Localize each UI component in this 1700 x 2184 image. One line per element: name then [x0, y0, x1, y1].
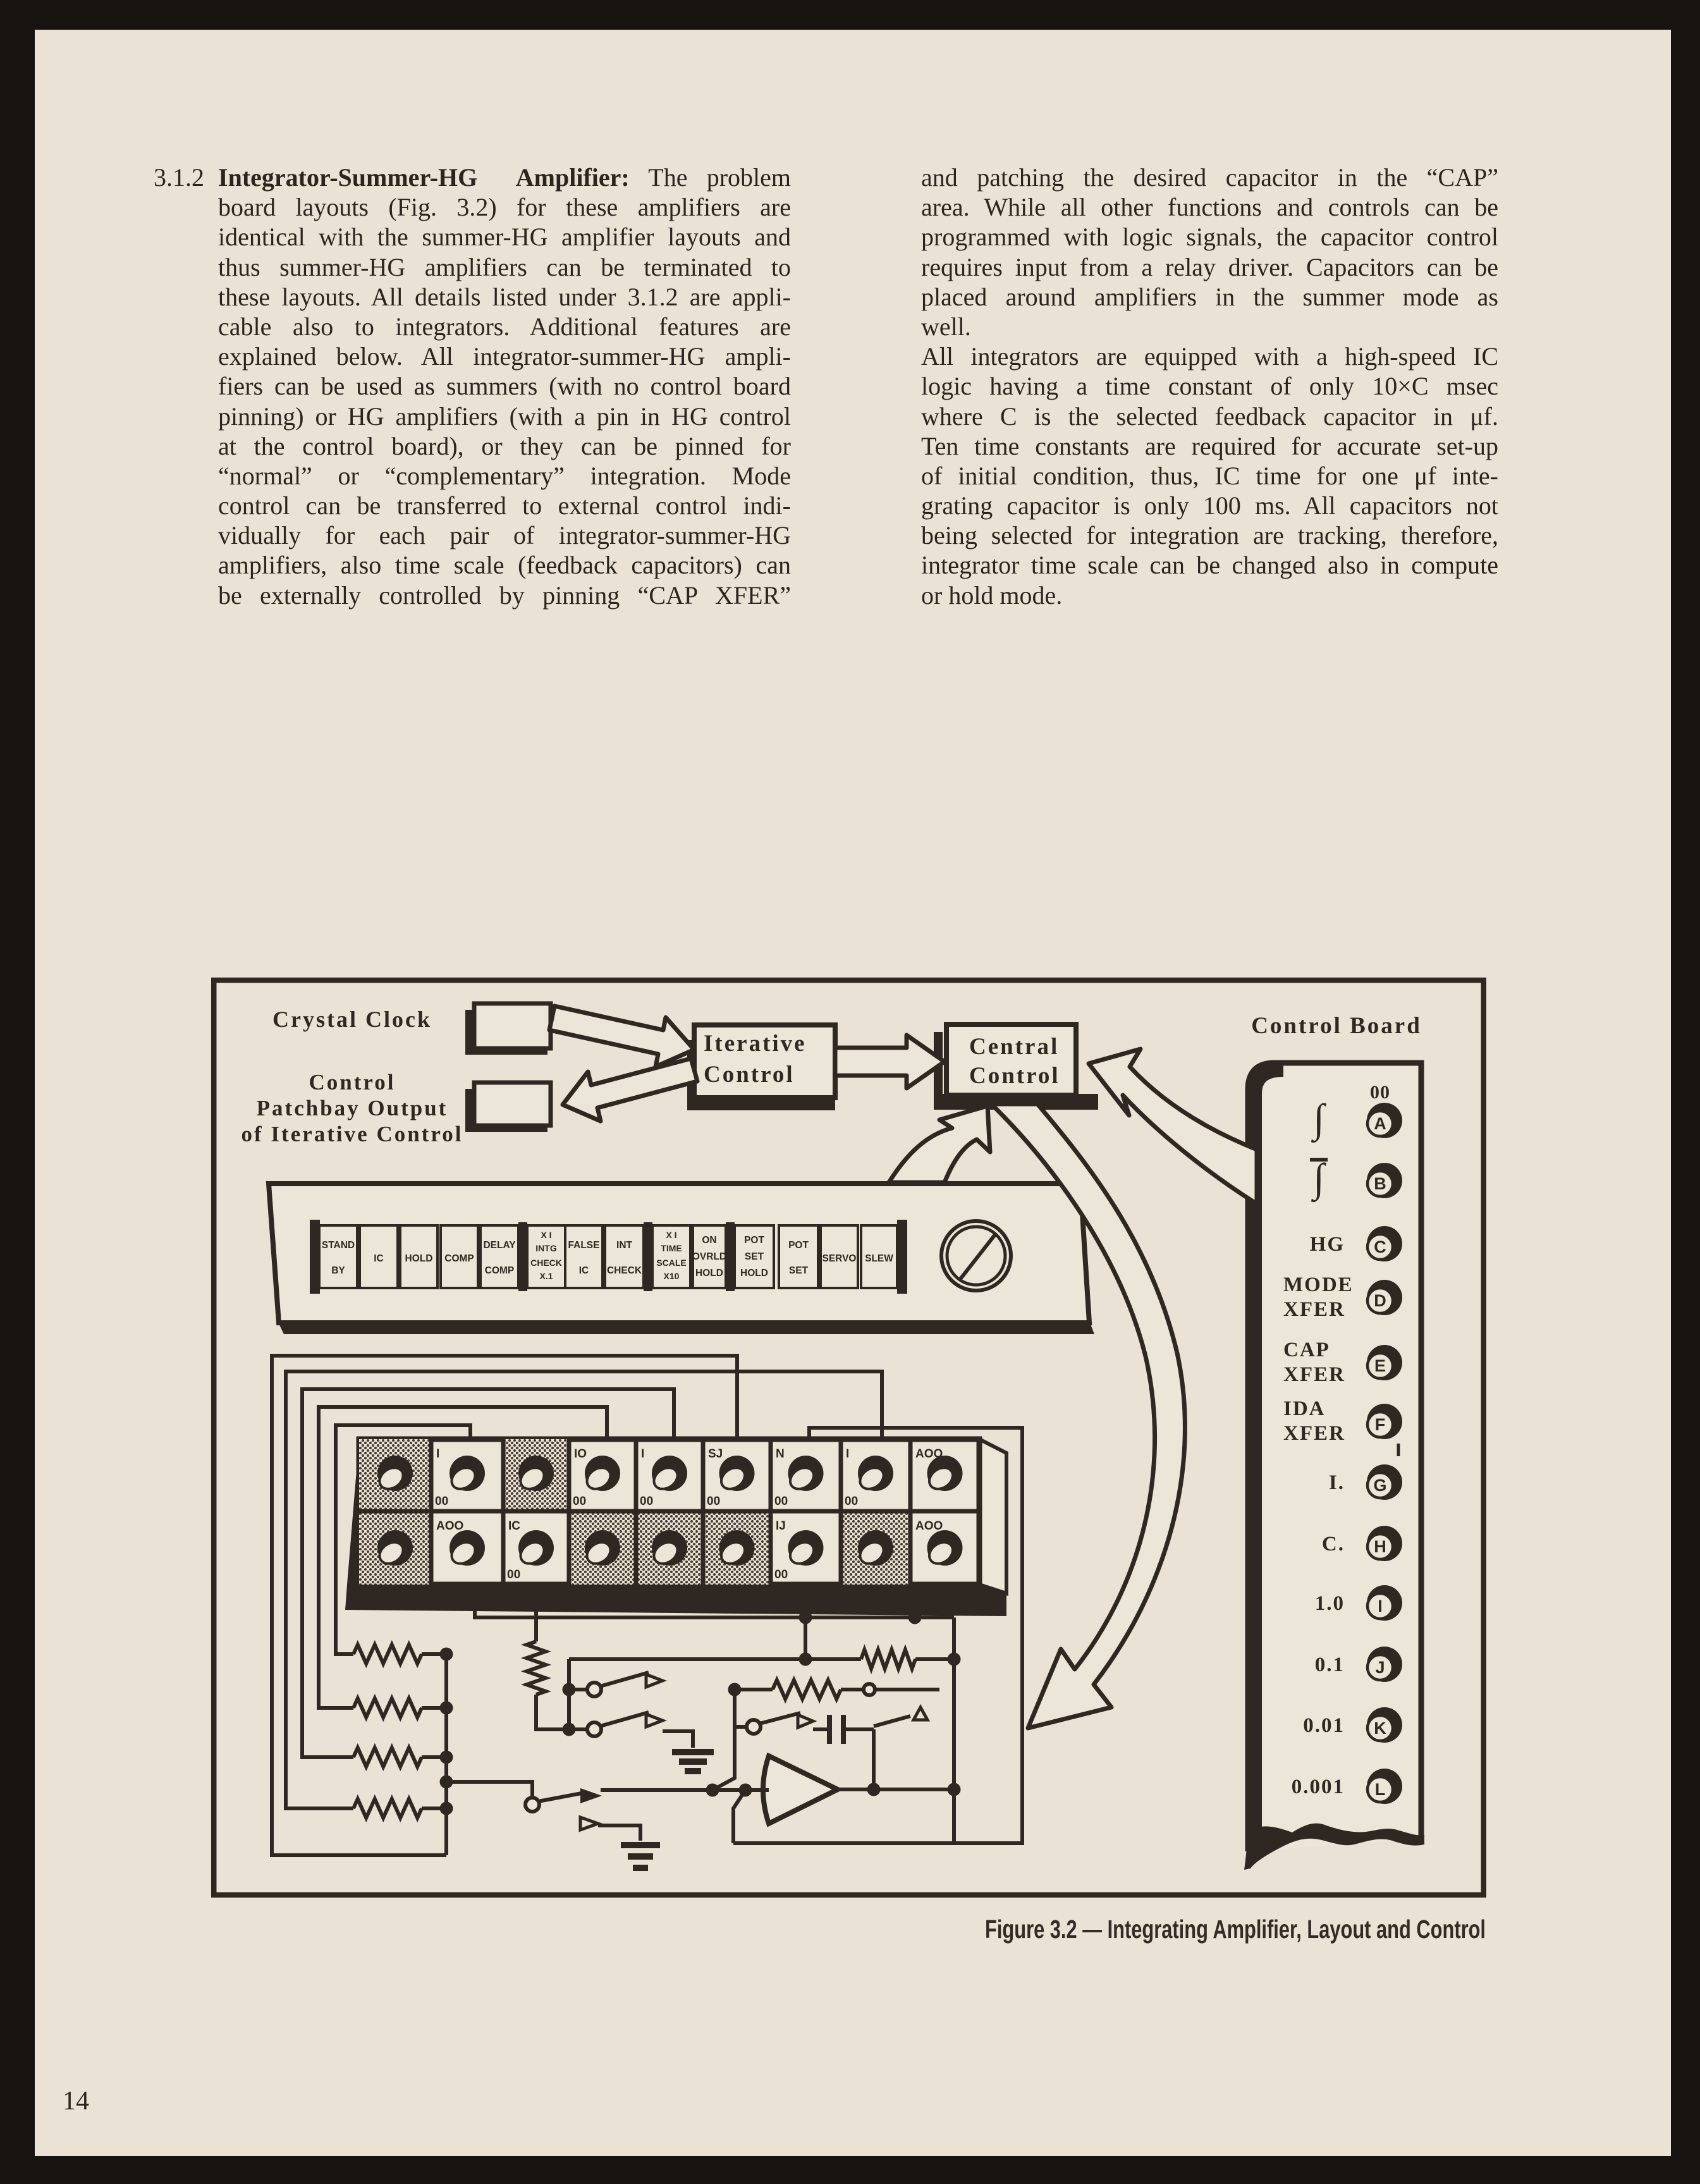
svg-text:DELAY: DELAY — [483, 1240, 516, 1251]
svg-text:E: E — [1374, 1356, 1386, 1375]
svg-text:00: 00 — [507, 1568, 520, 1581]
svg-text:I.: I. — [1329, 1471, 1345, 1494]
svg-text:XFER: XFER — [1283, 1298, 1345, 1321]
svg-text:A: A — [1374, 1114, 1386, 1133]
svg-text:L: L — [1375, 1780, 1386, 1799]
svg-text:SLEW: SLEW — [865, 1253, 893, 1264]
svg-text:IDA: IDA — [1283, 1397, 1326, 1420]
svg-text:XFER: XFER — [1283, 1422, 1345, 1445]
svg-text:IC: IC — [374, 1253, 384, 1264]
svg-text:FALSE: FALSE — [568, 1240, 600, 1251]
svg-text:AOO: AOO — [436, 1519, 463, 1533]
svg-text:SJ: SJ — [708, 1447, 723, 1461]
svg-text:Iterative: Iterative — [704, 1031, 807, 1057]
svg-text:Crystal Clock: Crystal Clock — [272, 1007, 432, 1032]
svg-text:BY: BY — [331, 1265, 345, 1276]
svg-text:X I: X I — [666, 1230, 676, 1240]
svg-text:1.0: 1.0 — [1315, 1592, 1345, 1615]
svg-text:I: I — [641, 1447, 644, 1461]
svg-text:X.1: X.1 — [539, 1271, 553, 1281]
svg-text:Control: Control — [309, 1070, 395, 1095]
svg-text:I: I — [436, 1447, 439, 1461]
svg-text:∫: ∫ — [1311, 1155, 1326, 1203]
svg-text:SCALE: SCALE — [656, 1258, 686, 1268]
svg-text:HG: HG — [1310, 1233, 1345, 1256]
svg-text:I: I — [1378, 1597, 1383, 1616]
svg-text:AOO: AOO — [915, 1447, 943, 1461]
svg-text:IJ: IJ — [776, 1519, 786, 1533]
svg-text:HOLD: HOLD — [695, 1268, 723, 1279]
svg-text:MODE: MODE — [1283, 1273, 1354, 1296]
svg-text:G: G — [1373, 1476, 1386, 1495]
svg-text:TIME: TIME — [661, 1243, 682, 1253]
svg-text:POT: POT — [744, 1235, 764, 1246]
svg-text:IC: IC — [579, 1265, 589, 1276]
svg-text:of Iterative Control: of Iterative Control — [242, 1122, 463, 1146]
svg-text:00: 00 — [774, 1495, 788, 1508]
svg-text:00: 00 — [640, 1495, 653, 1508]
svg-text:N: N — [776, 1447, 785, 1461]
svg-text:Central: Central — [969, 1034, 1059, 1060]
svg-text:CAP: CAP — [1283, 1339, 1330, 1361]
svg-text:ON: ON — [702, 1235, 716, 1246]
svg-text:Patchbay Output: Patchbay Output — [257, 1096, 448, 1120]
svg-text:0.01: 0.01 — [1303, 1714, 1345, 1737]
svg-text:X10: X10 — [664, 1271, 680, 1281]
svg-text:0.001: 0.001 — [1292, 1776, 1345, 1798]
svg-text:IO: IO — [574, 1447, 587, 1461]
svg-text:INTG: INTG — [535, 1243, 557, 1253]
svg-text:X I: X I — [541, 1230, 551, 1240]
svg-text:HOLD: HOLD — [405, 1253, 433, 1264]
svg-text:00: 00 — [1370, 1082, 1390, 1103]
svg-text:Control: Control — [704, 1062, 795, 1088]
svg-text:C: C — [1374, 1237, 1386, 1256]
svg-text:0.1: 0.1 — [1315, 1653, 1345, 1676]
svg-text:SET: SET — [789, 1265, 809, 1276]
svg-text:POT: POT — [788, 1240, 809, 1251]
svg-text:J: J — [1375, 1658, 1385, 1677]
svg-text:SERVO: SERVO — [822, 1253, 857, 1264]
svg-text:B: B — [1374, 1174, 1386, 1193]
svg-text:CHECK: CHECK — [607, 1265, 642, 1276]
svg-text:Control: Control — [969, 1063, 1060, 1089]
svg-text:H: H — [1374, 1537, 1386, 1556]
svg-text:HOLD: HOLD — [740, 1268, 768, 1279]
svg-text:00: 00 — [774, 1568, 788, 1581]
svg-text:C.: C. — [1322, 1533, 1345, 1555]
svg-text:OVRLD: OVRLD — [692, 1251, 726, 1262]
svg-text:AOO: AOO — [915, 1519, 943, 1533]
svg-text:F: F — [1375, 1415, 1386, 1434]
svg-text:IC: IC — [508, 1519, 520, 1533]
svg-text:00: 00 — [573, 1495, 586, 1508]
svg-text:COMP: COMP — [485, 1265, 515, 1276]
svg-text:00: 00 — [435, 1495, 448, 1508]
svg-text:∫: ∫ — [1311, 1096, 1326, 1143]
svg-text:K: K — [1374, 1719, 1386, 1738]
svg-text:00: 00 — [707, 1495, 720, 1508]
svg-text:Control Board: Control Board — [1251, 1013, 1422, 1039]
svg-text:INT: INT — [616, 1240, 633, 1251]
svg-text:SET: SET — [745, 1251, 764, 1262]
svg-text:00: 00 — [845, 1495, 858, 1508]
svg-text:COMP: COMP — [444, 1253, 474, 1264]
svg-text:CHECK: CHECK — [530, 1258, 562, 1268]
svg-text:D: D — [1374, 1291, 1386, 1310]
svg-text:STAND: STAND — [322, 1240, 355, 1251]
svg-text:XFER: XFER — [1283, 1363, 1345, 1386]
svg-text:I: I — [846, 1447, 849, 1461]
